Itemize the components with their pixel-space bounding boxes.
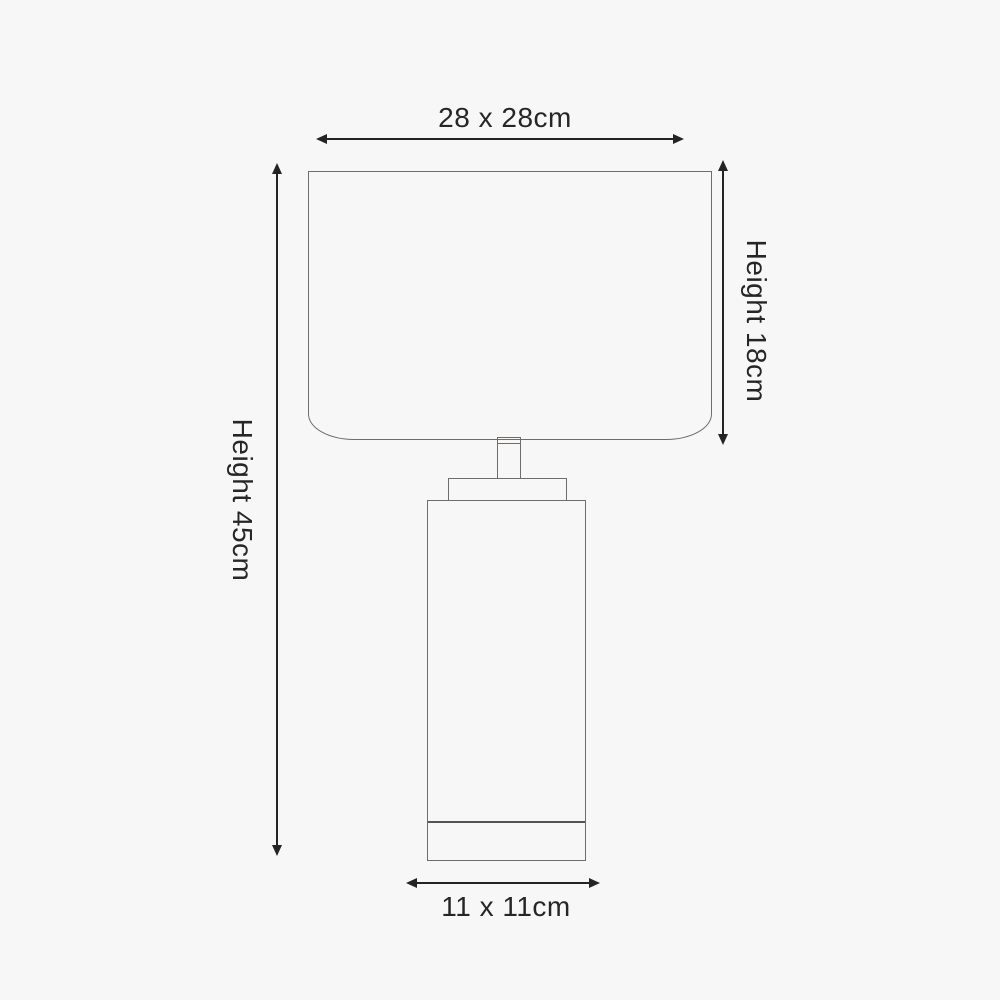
- arrowhead-right-icon: [673, 134, 684, 144]
- lamp-dimension-diagram: 28 x 28cm Height 18cm Height 45cm 11 x 1…: [0, 0, 1000, 1000]
- lamp-cap-outline: [448, 478, 567, 501]
- dimension-label-base-width: 11 x 11cm: [441, 893, 571, 921]
- lamp-neck-outline: [497, 437, 521, 479]
- arrowhead-down-icon: [718, 434, 728, 445]
- dimension-line-shade-height: [722, 167, 724, 438]
- lamp-shade-outline: [308, 171, 712, 440]
- dimension-arrow-base-width: [406, 878, 600, 888]
- dimension-arrow-shade-height: [718, 160, 728, 445]
- dimension-arrow-overall-height: [272, 163, 282, 856]
- dimension-label-shade-height: Height 18cm: [742, 240, 770, 403]
- lamp-base-band-line: [428, 821, 585, 823]
- arrowhead-down-icon: [272, 845, 282, 856]
- dimension-arrow-shade-width: [316, 134, 684, 144]
- lamp-neck-collar-line: [498, 443, 520, 444]
- dimension-line-shade-width: [323, 138, 677, 140]
- dimension-label-overall-height: Height 45cm: [228, 419, 256, 582]
- arrowhead-right-icon: [589, 878, 600, 888]
- dimension-line-overall-height: [276, 170, 278, 849]
- dimension-label-shade-width: 28 x 28cm: [438, 104, 572, 132]
- lamp-body-outline: [427, 500, 586, 861]
- dimension-line-base-width: [413, 882, 593, 884]
